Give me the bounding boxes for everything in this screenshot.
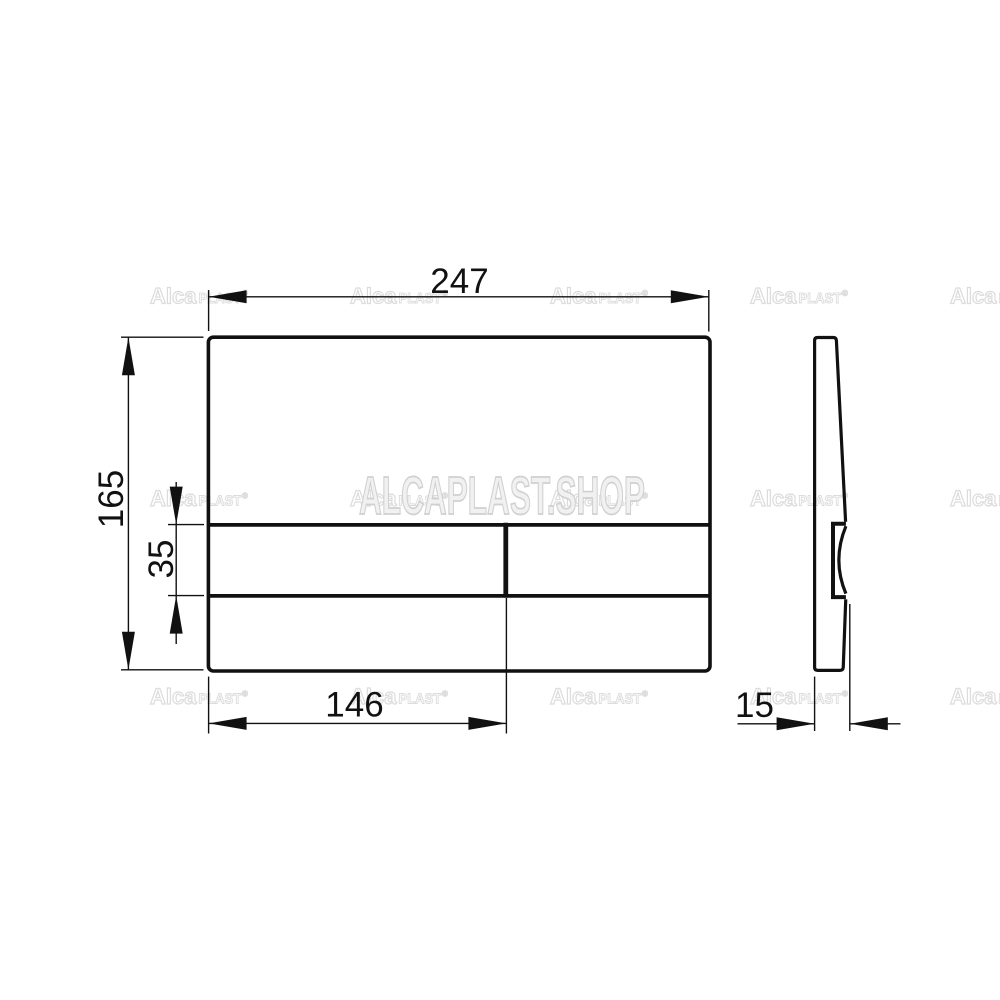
svg-text:165: 165: [92, 470, 131, 528]
svg-text:15: 15: [735, 686, 774, 725]
svg-text:146: 146: [325, 686, 383, 725]
svg-text:247: 247: [430, 262, 488, 301]
svg-text:35: 35: [142, 540, 181, 579]
svg-text:ALCAPLAST.SHOP: ALCAPLAST.SHOP: [359, 466, 645, 526]
